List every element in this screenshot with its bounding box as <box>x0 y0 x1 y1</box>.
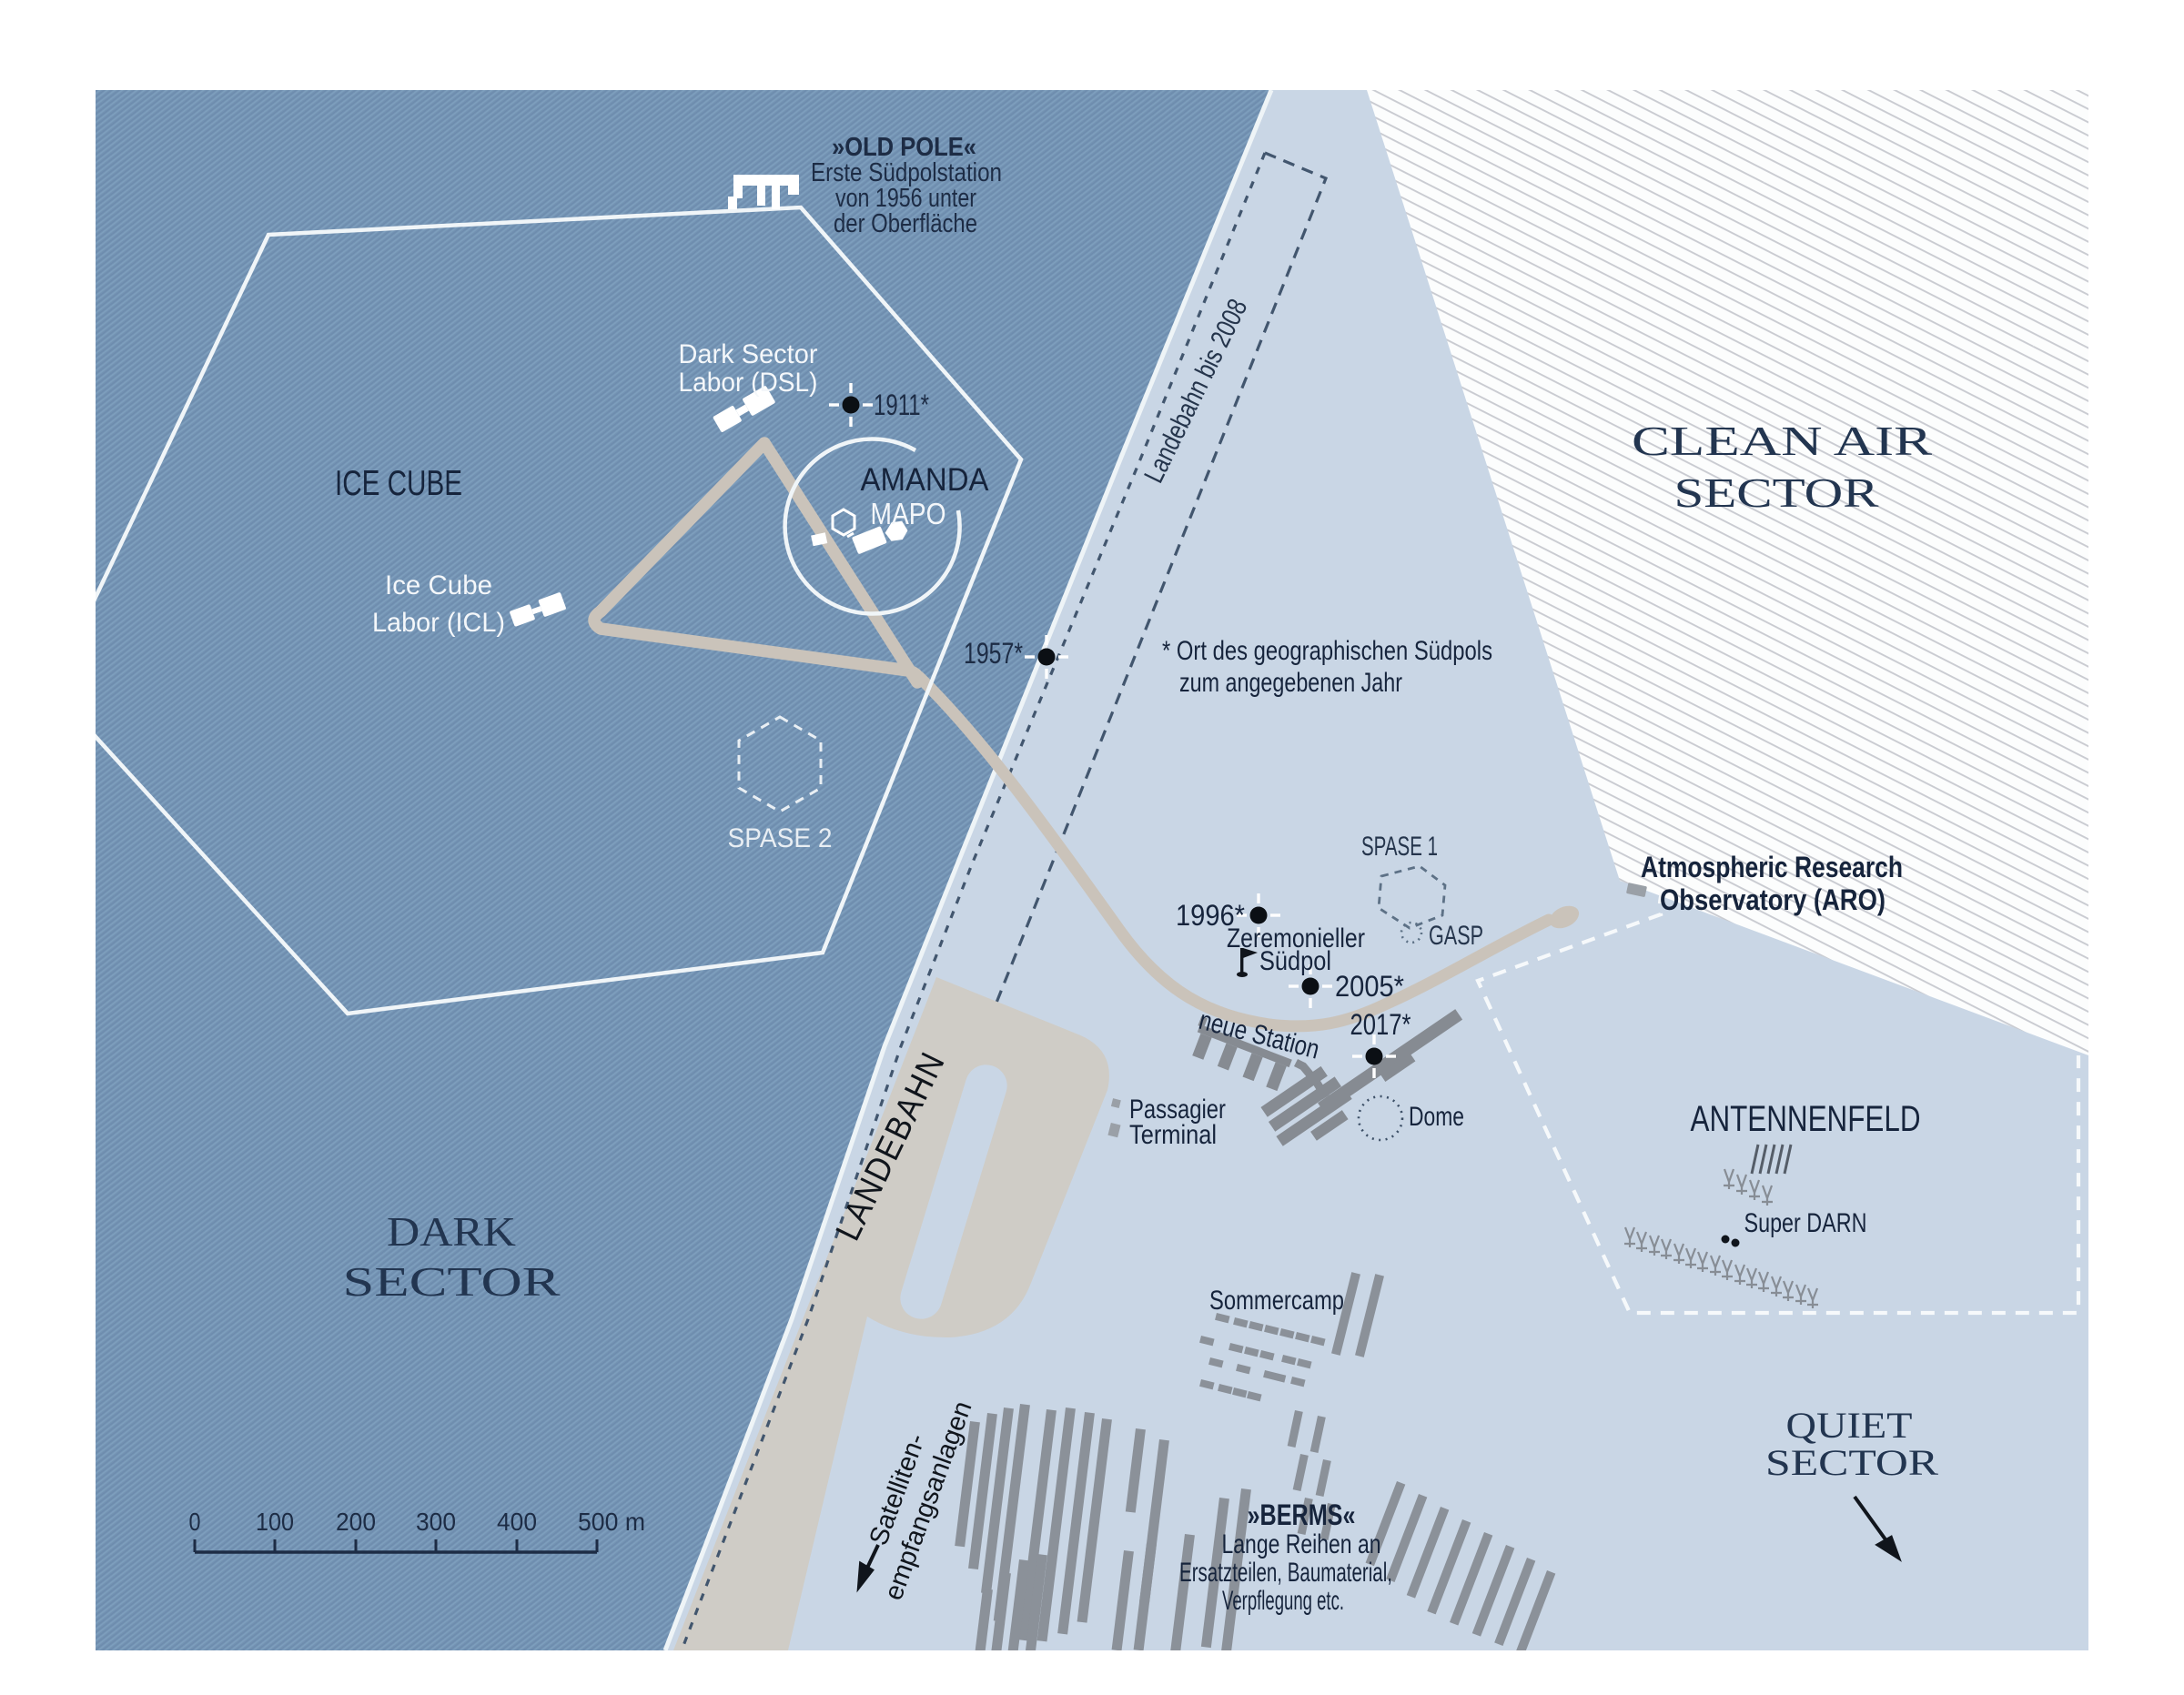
svg-text:2017*: 2017* <box>1350 1008 1411 1041</box>
svg-text:1957*: 1957* <box>964 637 1023 670</box>
svg-text:* Ort des geographischen Südpo: * Ort des geographischen Südpols <box>1162 636 1492 666</box>
svg-text:Super DARN: Super DARN <box>1744 1208 1867 1238</box>
svg-text:ANTENNENFELD: ANTENNENFELD <box>1691 1099 1921 1139</box>
svg-text:zum angegebenen Jahr: zum angegebenen Jahr <box>1179 668 1402 698</box>
svg-text:QUIET: QUIET <box>1786 1405 1913 1446</box>
svg-text:Labor (DSL): Labor (DSL) <box>679 368 818 398</box>
svg-text:MAPO: MAPO <box>871 497 946 530</box>
svg-text:SECTOR: SECTOR <box>1674 469 1879 516</box>
svg-text:Verpflegung etc.: Verpflegung etc. <box>1222 1586 1344 1616</box>
svg-text:CLEAN AIR: CLEAN AIR <box>1632 418 1932 464</box>
svg-text:Südpol: Südpol <box>1259 946 1331 976</box>
svg-text:1911*: 1911* <box>874 388 929 421</box>
svg-text:400: 400 <box>497 1508 537 1536</box>
svg-text:200: 200 <box>336 1508 376 1536</box>
svg-text:Sommercamp: Sommercamp <box>1209 1286 1344 1316</box>
svg-text:500 m: 500 m <box>578 1508 645 1536</box>
svg-text:Dome: Dome <box>1409 1102 1464 1132</box>
svg-text:AMANDA: AMANDA <box>861 462 990 498</box>
svg-text:100: 100 <box>256 1508 294 1536</box>
svg-text:2005*: 2005* <box>1335 970 1404 1003</box>
svg-text:Labor (ICL): Labor (ICL) <box>372 608 505 638</box>
svg-text:Observatory (ARO): Observatory (ARO) <box>1660 883 1886 916</box>
svg-text:0: 0 <box>189 1508 201 1536</box>
svg-text:der Oberfläche: der Oberfläche <box>834 209 977 238</box>
svg-text:Ice Cube: Ice Cube <box>385 570 492 600</box>
svg-text:Lange Reihen an: Lange Reihen an <box>1222 1529 1381 1559</box>
svg-text:Dark Sector: Dark Sector <box>679 339 818 369</box>
svg-text:»BERMS«: »BERMS« <box>1248 1498 1356 1531</box>
svg-text:SPASE 1: SPASE 1 <box>1361 832 1438 862</box>
svg-text:GASP: GASP <box>1429 921 1483 951</box>
svg-text:Ersatzteilen, Baumaterial,: Ersatzteilen, Baumaterial, <box>1179 1558 1392 1588</box>
svg-text:DARK: DARK <box>387 1208 516 1255</box>
svg-text:ICE CUBE: ICE CUBE <box>335 464 462 503</box>
svg-text:300: 300 <box>416 1508 456 1536</box>
svg-text:SPASE 2: SPASE 2 <box>728 823 833 853</box>
svg-text:SECTOR: SECTOR <box>1765 1442 1938 1483</box>
svg-text:Terminal: Terminal <box>1129 1120 1217 1150</box>
svg-text:Atmospheric Research: Atmospheric Research <box>1641 851 1903 883</box>
svg-text:SECTOR: SECTOR <box>343 1258 561 1305</box>
